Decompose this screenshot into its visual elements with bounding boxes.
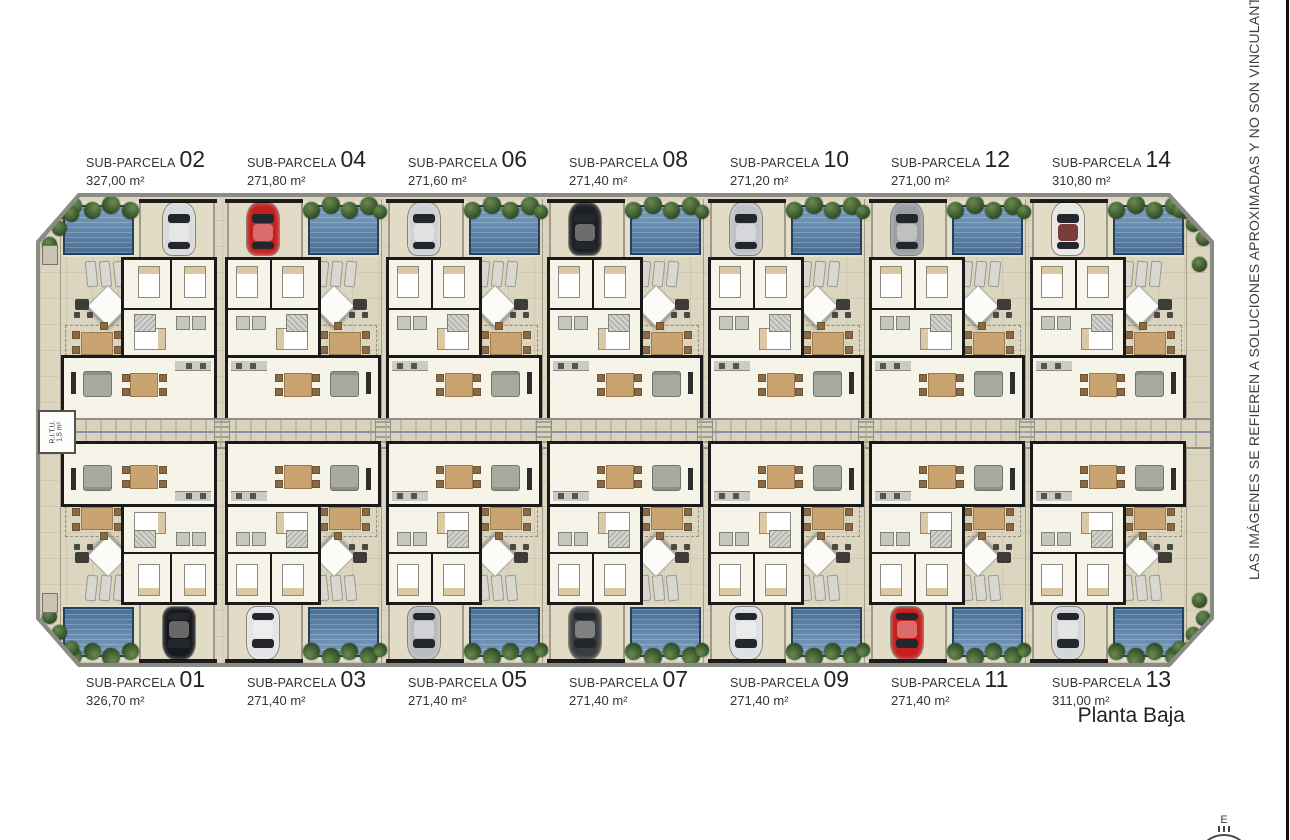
terrace-table (1158, 552, 1172, 563)
sofa (83, 465, 112, 491)
dining-chair (597, 466, 605, 474)
utility-box-text: R.I.T.U. 1,5 m² (50, 420, 64, 443)
pillow (921, 329, 928, 349)
outdoor-dining-chair (362, 508, 370, 516)
dining-table (1089, 373, 1117, 397)
stove (200, 363, 206, 369)
outdoor-dining-chair (817, 322, 825, 330)
shower (447, 314, 469, 332)
tv-unit (71, 372, 76, 394)
car-windshield (1057, 639, 1079, 648)
house-bedroom-wing (386, 257, 482, 363)
house-bedroom-wing (1030, 499, 1126, 605)
house-living-wing (1030, 441, 1186, 507)
stove (236, 363, 242, 369)
sun-lounger (344, 574, 358, 601)
entrance-box (42, 593, 58, 613)
interior-wall (914, 554, 916, 602)
shower (1091, 314, 1113, 332)
sofa (491, 371, 520, 397)
sun-lounger (827, 260, 841, 287)
sun-lounger (85, 574, 99, 601)
tree-icon (464, 202, 481, 219)
terrace-chair (362, 312, 368, 318)
street-gate (708, 659, 786, 663)
sun-lounger (330, 260, 344, 287)
car-roof (253, 621, 273, 638)
sink (250, 363, 256, 369)
house-bedroom-wing (121, 257, 217, 363)
terrace-chair (1167, 544, 1173, 550)
interior-wall (228, 308, 318, 310)
interior-wall (550, 308, 640, 310)
tv-unit (688, 468, 693, 490)
outdoor-dining-table (651, 507, 683, 530)
parcel-label-line: SUB-PARCELA10 (730, 146, 865, 173)
parcel-area: 271,40 m² (408, 693, 543, 708)
pillow (185, 588, 205, 595)
outdoor-dining-chair (845, 331, 853, 339)
pillow (921, 513, 928, 533)
tree-icon (502, 202, 519, 219)
car-roof (1058, 621, 1078, 638)
parcel-11 (865, 445, 1026, 663)
dining-chair (436, 374, 444, 382)
labels-bottom-row: SUB-PARCELA01326,70 m²SUB-PARCELA03271,4… (60, 666, 1187, 714)
outdoor-dining-chair (362, 346, 370, 354)
parcel-label-prefix: SUB-PARCELA (730, 676, 820, 690)
car-windshield (735, 214, 757, 223)
sun-lounger (813, 574, 827, 601)
house-bedroom-wing (225, 499, 321, 605)
car (569, 607, 601, 659)
car-roof (253, 224, 273, 241)
dining-chair (159, 466, 167, 474)
dining-chair (436, 466, 444, 474)
outdoor-dining-chair (1167, 346, 1175, 354)
parcel-label-03: SUB-PARCELA03271,40 m² (221, 666, 382, 708)
outdoor-dining-chair (1125, 508, 1133, 516)
parcel-label-line: SUB-PARCELA06 (408, 146, 543, 173)
bed (926, 266, 948, 298)
shower (134, 314, 156, 332)
tree-icon (966, 196, 984, 214)
bath-fixture (558, 532, 572, 546)
bath-fixture (896, 316, 910, 330)
dining-chair (795, 466, 803, 474)
bed (604, 564, 626, 596)
sun-lounger (666, 574, 680, 601)
outdoor-dining-chair (320, 523, 328, 531)
tree-icon (805, 196, 823, 214)
bath-fixture (896, 532, 910, 546)
sun-lounger (99, 260, 113, 287)
page-title: Planta Baja (1063, 704, 1185, 728)
outdoor-dining-chair (803, 523, 811, 531)
outdoor-dining-chair (1139, 532, 1147, 540)
outdoor-dining-chair (100, 532, 108, 540)
bed (138, 266, 160, 298)
outdoor-dining-chair (817, 532, 825, 540)
bed (397, 564, 419, 596)
dining-table (445, 465, 473, 489)
house-bedroom-wing (1030, 257, 1126, 363)
entrance-box (42, 245, 58, 265)
sun-lounger (344, 260, 358, 287)
house-living-wing (225, 355, 381, 421)
pillow (760, 329, 767, 349)
sun-lounger (505, 260, 519, 287)
pillow (283, 588, 303, 595)
house-living-wing (869, 441, 1025, 507)
bath-fixture (880, 532, 894, 546)
terrace-chair (1154, 544, 1160, 550)
parcel-label-prefix: SUB-PARCELA (891, 676, 981, 690)
sun-lounger (827, 574, 841, 601)
parcel-02 (60, 199, 221, 417)
car-windshield (413, 214, 435, 223)
parcel-label-line: SUB-PARCELA07 (569, 666, 704, 693)
bed (558, 564, 580, 596)
pillow (1088, 588, 1108, 595)
parcel-number: 09 (824, 666, 850, 693)
bath-fixture (236, 532, 250, 546)
house-living-wing (386, 441, 542, 507)
interior-wall (711, 552, 801, 554)
terrace-chair (523, 544, 529, 550)
parcel-label-09: SUB-PARCELA09271,40 m² (704, 666, 865, 708)
bed (880, 266, 902, 298)
sun-lounger (1149, 260, 1163, 287)
parcel-label-line: SUB-PARCELA12 (891, 146, 1026, 173)
terrace-chair (1167, 312, 1173, 318)
terrace-chair (684, 312, 690, 318)
terrace-table (836, 299, 850, 310)
tree-icon (644, 196, 662, 214)
dining-table (928, 373, 956, 397)
pillow (283, 267, 303, 274)
interior-wall (872, 308, 962, 310)
terrace-chair (671, 312, 677, 318)
interior-wall (711, 308, 801, 310)
sofa (652, 371, 681, 397)
parcel-label-12: SUB-PARCELA12271,00 m² (865, 146, 1026, 188)
dining-chair (275, 480, 283, 488)
outdoor-dining-chair (523, 331, 531, 339)
tree-icon (341, 643, 358, 660)
shower (286, 314, 308, 332)
dining-chair (919, 466, 927, 474)
pillow (881, 588, 901, 595)
pillow (398, 588, 418, 595)
interior-wall (1033, 552, 1123, 554)
tree-icon (663, 643, 680, 660)
parcel-label-prefix: SUB-PARCELA (408, 676, 498, 690)
parcel-label-prefix: SUB-PARCELA (730, 156, 820, 170)
terrace-table (675, 552, 689, 563)
row-top (60, 199, 1187, 417)
parcel-label-prefix: SUB-PARCELA (1052, 156, 1142, 170)
house-bedroom-wing (386, 499, 482, 605)
sofa (330, 371, 359, 397)
bath-fixture (1057, 316, 1071, 330)
car-roof (736, 224, 756, 241)
sun-lounger (491, 260, 505, 287)
utility-line2: 1,5 m² (57, 422, 64, 442)
outdoor-dining-chair (642, 331, 650, 339)
dining-chair (597, 374, 605, 382)
dining-chair (159, 480, 167, 488)
dining-chair (473, 466, 481, 474)
compass-east-label: E (1196, 815, 1252, 826)
outdoor-dining-chair (72, 346, 80, 354)
parcel-label-13: SUB-PARCELA13311,00 m² (1026, 666, 1187, 708)
dining-chair (956, 374, 964, 382)
tree-icon (122, 202, 139, 219)
car (1052, 607, 1084, 659)
parcel-label-07: SUB-PARCELA07271,40 m² (543, 666, 704, 708)
terrace-table (353, 552, 367, 563)
sink (186, 363, 192, 369)
bath-fixture (176, 532, 190, 546)
stove (880, 493, 886, 499)
outdoor-dining-chair (72, 508, 80, 516)
car-rear-window (735, 242, 757, 249)
outdoor-dining-chair (481, 331, 489, 339)
outdoor-dining-chair (523, 523, 531, 531)
stove (558, 493, 564, 499)
pillow (444, 588, 464, 595)
parcel-area: 271,20 m² (730, 173, 865, 188)
dining-table (284, 373, 312, 397)
parcel-07 (543, 445, 704, 663)
stove (880, 363, 886, 369)
compass-circle (1196, 834, 1252, 840)
parcel-area: 271,40 m² (730, 693, 865, 708)
outdoor-dining-chair (978, 532, 986, 540)
shower (286, 530, 308, 548)
street-gate (139, 659, 217, 663)
interior-wall (592, 554, 594, 602)
terrace-table (353, 299, 367, 310)
pillow (139, 588, 159, 595)
outdoor-dining-chair (656, 322, 664, 330)
shower (608, 314, 630, 332)
pillow (1042, 267, 1062, 274)
parcel-10 (704, 199, 865, 417)
dining-chair (159, 374, 167, 382)
tree-icon (303, 643, 320, 660)
bed (443, 564, 465, 596)
shower (134, 530, 156, 548)
pillow (398, 267, 418, 274)
bed (1041, 564, 1063, 596)
car (1052, 203, 1084, 255)
outdoor-dining-chair (684, 346, 692, 354)
parcel-number: 02 (180, 146, 206, 173)
outdoor-dining-table (973, 507, 1005, 530)
terrace-chair (349, 312, 355, 318)
interior-wall (753, 260, 755, 308)
parcel-05 (382, 445, 543, 663)
car (408, 203, 440, 255)
bed (397, 266, 419, 298)
tree-icon (663, 202, 680, 219)
parcel-label-05: SUB-PARCELA05271,40 m² (382, 666, 543, 708)
car-roof (169, 224, 189, 241)
pillow (438, 329, 445, 349)
outdoor-dining-chair (523, 346, 531, 354)
outdoor-dining-chair (845, 508, 853, 516)
utility-box-ritu: R.I.T.U. 1,5 m² (38, 410, 76, 454)
pillow (720, 267, 740, 274)
bed (880, 564, 902, 596)
sun-lounger (491, 574, 505, 601)
bed (719, 564, 741, 596)
parcel-label-04: SUB-PARCELA04271,80 m² (221, 146, 382, 188)
bath-fixture (252, 532, 266, 546)
outdoor-dining-chair (964, 346, 972, 354)
terrace-chair (1006, 544, 1012, 550)
outdoor-dining-chair (642, 523, 650, 531)
dining-chair (275, 466, 283, 474)
street-gate (1030, 659, 1108, 663)
parcel-06 (382, 199, 543, 417)
bed (926, 564, 948, 596)
outdoor-dining-chair (495, 532, 503, 540)
parcel-label-11: SUB-PARCELA11271,40 m² (865, 666, 1026, 708)
sofa (1135, 371, 1164, 397)
parcel-label-prefix: SUB-PARCELA (569, 156, 659, 170)
sun-lounger (1135, 574, 1149, 601)
tree-icon (84, 643, 101, 660)
interior-wall (270, 260, 272, 308)
tv-unit (366, 468, 371, 490)
parcel-number: 08 (663, 146, 689, 173)
dining-chair (956, 480, 964, 488)
tv-unit (1010, 372, 1015, 394)
outdoor-dining-chair (320, 346, 328, 354)
car-roof (575, 621, 595, 638)
parcel-number: 03 (341, 666, 367, 693)
tree-icon (1192, 593, 1207, 608)
dining-chair (919, 374, 927, 382)
interior-wall (1075, 554, 1077, 602)
outdoor-dining-chair (1167, 331, 1175, 339)
bath-fixture (719, 532, 733, 546)
sun-lounger (1149, 574, 1163, 601)
car-roof (414, 224, 434, 241)
terrace-table (75, 299, 89, 310)
dining-chair (1117, 466, 1125, 474)
dining-chair (956, 388, 964, 396)
walkway-stairs (214, 420, 230, 443)
tree-icon (947, 643, 964, 660)
outdoor-dining-chair (72, 523, 80, 531)
stove (1041, 363, 1047, 369)
terrace-chair (1006, 312, 1012, 318)
tree-icon (464, 643, 481, 660)
parcel-label-prefix: SUB-PARCELA (86, 156, 176, 170)
bed (138, 564, 160, 596)
right-edge-border (1286, 0, 1289, 840)
house-bedroom-wing (547, 499, 643, 605)
tree-icon (341, 202, 358, 219)
bed (1041, 266, 1063, 298)
dining-chair (795, 388, 803, 396)
terrace-chair (349, 544, 355, 550)
parcel-number: 05 (502, 666, 528, 693)
pillow (720, 588, 740, 595)
walkway-stairs (858, 420, 874, 443)
car-rear-window (735, 613, 757, 620)
dining-table (767, 465, 795, 489)
dining-table (928, 465, 956, 489)
outdoor-dining-table (490, 332, 522, 355)
sofa (83, 371, 112, 397)
dining-chair (1117, 480, 1125, 488)
interior-wall (389, 552, 479, 554)
bed (184, 564, 206, 596)
parcel-area: 310,80 m² (1052, 173, 1187, 188)
outdoor-dining-chair (1006, 346, 1014, 354)
parcel-label-10: SUB-PARCELA10271,20 m² (704, 146, 865, 188)
outdoor-dining-chair (100, 322, 108, 330)
sun-lounger (974, 574, 988, 601)
car (163, 203, 195, 255)
parcel-label-prefix: SUB-PARCELA (569, 676, 659, 690)
sun-lounger (1135, 260, 1149, 287)
bath-fixture (719, 316, 733, 330)
pillow (1082, 513, 1089, 533)
terrace-chair (87, 544, 93, 550)
house-living-wing (1030, 355, 1186, 421)
car-windshield (574, 639, 596, 648)
tree-icon (483, 196, 501, 214)
outdoor-dining-chair (656, 532, 664, 540)
dining-chair (634, 374, 642, 382)
car-roof (897, 224, 917, 241)
dining-chair (919, 388, 927, 396)
pillow (927, 267, 947, 274)
outdoor-dining-chair (803, 508, 811, 516)
car-rear-window (1057, 613, 1079, 620)
car-rear-window (252, 613, 274, 620)
dining-chair (473, 480, 481, 488)
parcel-01 (60, 445, 221, 663)
interior-wall (124, 552, 214, 554)
bath-fixture (735, 316, 749, 330)
dining-chair (597, 388, 605, 396)
stove (397, 363, 403, 369)
car (730, 607, 762, 659)
sink (1055, 493, 1061, 499)
outdoor-dining-table (973, 332, 1005, 355)
sun-lounger (330, 574, 344, 601)
bath-fixture (1041, 532, 1055, 546)
pillow (559, 588, 579, 595)
dining-chair (597, 480, 605, 488)
bath-fixture (252, 316, 266, 330)
stove (1041, 493, 1047, 499)
interior-wall (1075, 260, 1077, 308)
house-bedroom-wing (869, 499, 965, 605)
stove (236, 493, 242, 499)
dining-chair (312, 466, 320, 474)
outdoor-dining-chair (334, 532, 342, 540)
walkway-stairs (697, 420, 713, 443)
house-bedroom-wing (121, 499, 217, 605)
